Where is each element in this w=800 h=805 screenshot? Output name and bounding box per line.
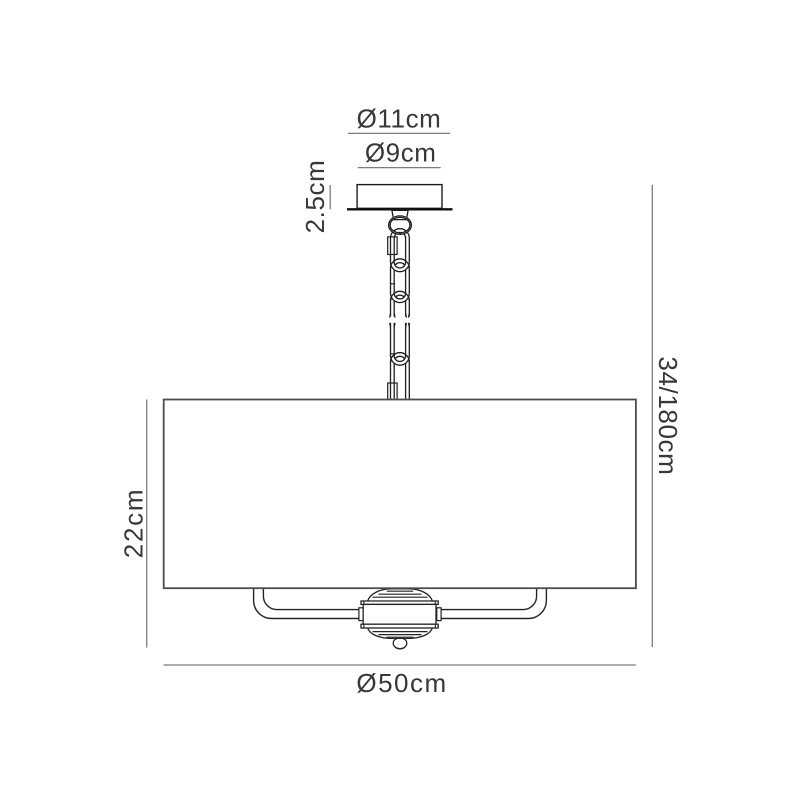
svg-text:22cm: 22cm: [119, 488, 149, 558]
svg-text:2.5cm: 2.5cm: [300, 160, 330, 234]
svg-text:Ø11cm: Ø11cm: [357, 104, 442, 134]
svg-text:34/180cm: 34/180cm: [653, 356, 683, 475]
svg-text:Ø9cm: Ø9cm: [365, 138, 437, 168]
svg-text:Ø50cm: Ø50cm: [356, 668, 447, 698]
